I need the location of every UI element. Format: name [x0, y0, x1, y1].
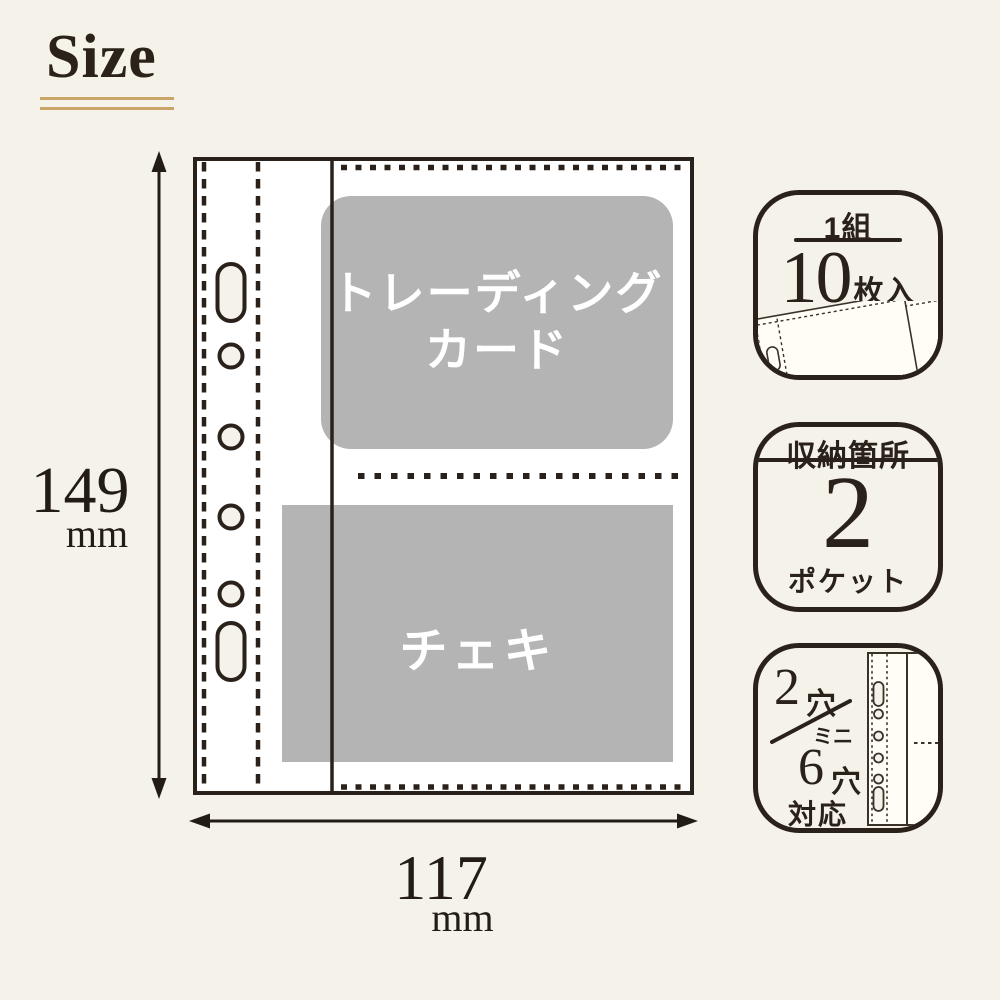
compat-two-unit: 穴: [806, 679, 836, 723]
title-underline-bottom: [40, 107, 174, 110]
badge-storage-pockets: 収納箇所 2 ポケット: [753, 422, 943, 612]
cheki-pocket-label: チェキ: [282, 627, 673, 677]
badge-hole-compatibility: 2 穴 ミニ 6 穴 対応: [753, 643, 943, 833]
arrowhead-up: [152, 151, 167, 172]
width-arrow: [189, 814, 698, 829]
height-arrow: [152, 151, 167, 799]
trading-card-label-line1: トレーディング: [321, 265, 673, 322]
height-dimension-unit: mm: [40, 514, 154, 554]
round-hole-1: [220, 345, 243, 368]
title-underline-top: [40, 97, 174, 100]
round-hole-2: [220, 426, 243, 449]
sheet-stack-icon: [754, 301, 942, 379]
compat-footer-label: 対応: [775, 793, 861, 833]
oblong-hole-top: [218, 264, 245, 321]
storage-count-value: 2: [758, 463, 938, 563]
arrowhead-left: [189, 814, 210, 829]
width-dimension-unit: mm: [405, 898, 520, 938]
compat-two-count: 2: [774, 662, 800, 714]
storage-unit-label: ポケット: [758, 560, 938, 600]
page-title: Size: [46, 24, 246, 90]
badge-pack-count: 1組 10 枚入: [753, 190, 943, 380]
product-size-infographic: Size 149 mm 117 mm トレーディング カード チェキ 1組 10…: [0, 0, 1000, 1000]
compat-six-count: 6: [798, 742, 824, 794]
arrowhead-right: [677, 814, 698, 829]
round-hole-4: [220, 583, 243, 606]
trading-card-label-line2: カード: [321, 322, 673, 379]
round-hole-3: [220, 506, 243, 529]
oblong-hole-bottom: [218, 623, 245, 680]
arrowhead-down: [152, 778, 167, 799]
trading-card-pocket-label: トレーディング カード: [321, 265, 673, 379]
